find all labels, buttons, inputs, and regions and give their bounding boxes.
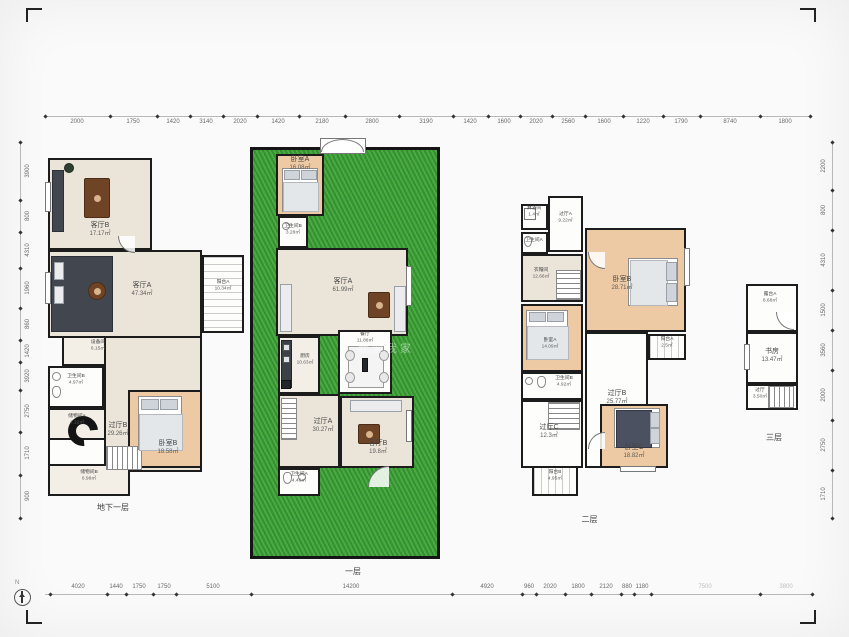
ruler-tick xyxy=(808,114,812,118)
blanket-icon xyxy=(616,410,652,448)
window xyxy=(45,182,51,212)
sofa-icon xyxy=(394,286,406,332)
ruler-line xyxy=(45,594,812,595)
ruler-tick xyxy=(48,592,52,596)
compass-icon xyxy=(14,589,31,606)
dimension-label: 2020 xyxy=(233,119,246,125)
ruler-tick xyxy=(830,418,834,422)
plant-icon xyxy=(64,163,74,173)
dimension-label: 1440 xyxy=(109,584,122,590)
ruler-tick xyxy=(830,328,834,332)
ruler-tick xyxy=(563,592,567,596)
sofa-icon xyxy=(350,400,402,412)
stairs-icon xyxy=(768,386,794,408)
sink-icon xyxy=(298,473,306,481)
dimension-label: 2120 xyxy=(599,584,612,590)
dimension-label: 14200 xyxy=(343,584,360,590)
dimension-label: 1750 xyxy=(132,584,145,590)
ruler-tick xyxy=(124,592,128,596)
ruler-tick xyxy=(43,114,47,118)
toilet-icon xyxy=(52,386,61,398)
ruler-tick xyxy=(450,592,454,596)
ruler-tick xyxy=(758,592,762,596)
ruler-tick xyxy=(18,360,22,364)
ruler-tick xyxy=(18,473,22,477)
ruler-tick xyxy=(518,114,522,118)
floor-label-second: 二层 xyxy=(562,514,617,525)
dimension-label: 2020 xyxy=(543,584,556,590)
dimension-label: 1420 xyxy=(25,344,31,357)
dimension-label: 800 xyxy=(821,205,827,215)
pillow-icon xyxy=(650,428,660,444)
ruler-tick xyxy=(661,114,665,118)
ruler-tick xyxy=(830,188,834,192)
ruler-tick xyxy=(18,140,22,144)
dimension-label: 1500 xyxy=(821,303,827,316)
sink-icon xyxy=(282,222,290,230)
dimension-label: 2800 xyxy=(365,119,378,125)
window xyxy=(744,344,750,370)
ruler-tick xyxy=(18,388,22,392)
ruler-tick xyxy=(649,592,653,596)
corner-mark xyxy=(800,610,816,624)
dimension-label: 4310 xyxy=(25,243,31,256)
ruler-tick xyxy=(105,592,109,596)
toilet-icon xyxy=(283,472,292,484)
dimension-label: 1220 xyxy=(636,119,649,125)
ruler-tick xyxy=(18,306,22,310)
pillow-icon xyxy=(666,262,677,281)
ruler-tick xyxy=(188,114,192,118)
pillow-icon xyxy=(141,399,159,410)
dimension-label: 1600 xyxy=(597,119,610,125)
dimension-label: 7500 xyxy=(698,584,711,590)
dimension-label: 1420 xyxy=(166,119,179,125)
window xyxy=(406,266,412,306)
pillow-icon xyxy=(650,412,660,428)
dimension-label: 1790 xyxy=(674,119,687,125)
ruler-tick xyxy=(619,592,623,596)
ruler-tick xyxy=(830,140,834,144)
dimension-label: 4920 xyxy=(480,584,493,590)
dimension-label: 3900 xyxy=(25,164,31,177)
round-table-icon xyxy=(88,282,106,300)
room-bath-b-f1 xyxy=(278,216,308,248)
ruler-tick xyxy=(520,592,524,596)
dimension-label: 4020 xyxy=(71,584,84,590)
ruler-tick xyxy=(18,230,22,234)
ruler-tick xyxy=(632,592,636,596)
ruler-tick xyxy=(18,516,22,520)
ruler-tick xyxy=(830,288,834,292)
ruler-tick xyxy=(108,114,112,118)
dimension-label: 1960 xyxy=(25,281,31,294)
window xyxy=(684,248,690,286)
dimension-label: 1800 xyxy=(571,584,584,590)
floor-label-third: 三层 xyxy=(748,432,800,443)
dimension-label: 5100 xyxy=(206,584,219,590)
stove-icon xyxy=(283,344,290,351)
dimension-label: 2000 xyxy=(821,388,827,401)
ruler-tick xyxy=(830,368,834,372)
dimension-label: 2560 xyxy=(561,119,574,125)
window xyxy=(406,410,412,442)
cushion-icon xyxy=(54,286,64,304)
dimension-label: 3800 xyxy=(779,584,792,590)
dimension-label: 1180 xyxy=(636,584,649,590)
compass-needle-icon xyxy=(21,591,23,603)
ruler-tick xyxy=(810,592,814,596)
floorplan-sheet: 2000175014203140202014202180280031901420… xyxy=(0,0,849,637)
dimension-label: 3140 xyxy=(199,119,212,125)
stairs-icon xyxy=(281,398,297,440)
dimension-label: 880 xyxy=(622,584,632,590)
dimension-label: 8740 xyxy=(723,119,736,125)
window xyxy=(45,272,51,304)
stairs-icon xyxy=(106,446,142,470)
north-label: N xyxy=(15,580,19,586)
sink-icon xyxy=(525,377,533,385)
dimension-label: 800 xyxy=(25,211,31,221)
ruler-tick xyxy=(255,114,259,118)
dimension-label: 1710 xyxy=(25,446,31,459)
ruler-tick xyxy=(830,468,834,472)
stairs-icon xyxy=(548,402,580,430)
room-balcony-b-f2 xyxy=(532,466,578,496)
dimension-label: 2180 xyxy=(315,119,328,125)
chair-icon xyxy=(379,372,389,383)
chair-icon xyxy=(345,372,355,383)
pillow-icon xyxy=(529,312,546,322)
dimension-label: 3920 xyxy=(25,369,31,382)
coffee-table-icon xyxy=(84,178,110,218)
blanket-icon xyxy=(630,260,668,306)
dimension-label: 860 xyxy=(25,319,31,329)
stairs-icon xyxy=(556,270,581,300)
watermark: 我爱我家 xyxy=(358,340,414,356)
pillow-icon xyxy=(160,399,178,410)
dimension-label: 2020 xyxy=(529,119,542,125)
shower-tray-icon xyxy=(524,208,536,220)
sink-icon xyxy=(52,372,61,381)
toilet-icon xyxy=(537,376,546,388)
ruler-tick xyxy=(18,198,22,202)
sofa-icon xyxy=(280,284,292,332)
ruler-tick xyxy=(550,114,554,118)
ruler-tick xyxy=(758,114,762,118)
ruler-tick xyxy=(155,114,159,118)
ruler-tick xyxy=(621,114,625,118)
corner-mark xyxy=(26,8,42,22)
dimension-label: 2000 xyxy=(70,119,83,125)
blanket-icon xyxy=(139,414,183,451)
toilet-icon xyxy=(524,236,532,247)
ruler-tick xyxy=(486,114,490,118)
ruler-tick xyxy=(583,114,587,118)
dimension-label: 2750 xyxy=(25,404,31,417)
blanket-icon xyxy=(283,182,319,212)
ruler-tick xyxy=(343,114,347,118)
dimension-label: 900 xyxy=(25,491,31,501)
dimension-label: 1800 xyxy=(778,119,791,125)
ruler-tick xyxy=(451,114,455,118)
pillow-icon xyxy=(284,170,300,180)
room-balcony-a xyxy=(202,255,244,333)
room-balcony-a-f2 xyxy=(648,334,686,360)
room-study xyxy=(746,332,798,384)
dimension-label: 2750 xyxy=(821,438,827,451)
room-hall-a-f2 xyxy=(548,196,583,252)
dimension-label: 1710 xyxy=(821,487,827,500)
floor-label-first: 一层 xyxy=(328,566,378,577)
sofa-icon xyxy=(52,170,64,232)
ruler-tick xyxy=(18,430,22,434)
fridge-icon xyxy=(281,380,291,389)
dimension-label: 3560 xyxy=(821,343,827,356)
corner-mark xyxy=(800,8,816,22)
blanket-icon xyxy=(527,326,569,360)
floor-label-basement: 地下一层 xyxy=(78,502,148,513)
pillow-icon xyxy=(547,312,564,322)
dimension-label: 1600 xyxy=(497,119,510,125)
ruler-tick xyxy=(830,516,834,520)
ruler-tick xyxy=(534,592,538,596)
cushion-icon xyxy=(54,262,64,280)
ruler-tick xyxy=(151,592,155,596)
ruler-tick xyxy=(18,338,22,342)
coffee-table-icon xyxy=(358,424,380,444)
kitchen-sink-icon xyxy=(283,356,290,363)
room-bath-b-f2 xyxy=(521,372,583,400)
dimension-label: 2200 xyxy=(821,159,827,172)
ruler-tick xyxy=(18,266,22,270)
chair-icon xyxy=(345,350,355,361)
ruler-tick xyxy=(249,592,253,596)
ruler-tick xyxy=(589,592,593,596)
dimension-label: 1420 xyxy=(463,119,476,125)
dimension-label: 3190 xyxy=(419,119,432,125)
ruler-tick xyxy=(297,114,301,118)
ruler-tick xyxy=(174,592,178,596)
corner-mark xyxy=(26,610,42,624)
dimension-label: 1750 xyxy=(126,119,139,125)
centerpiece-icon xyxy=(362,358,368,372)
dimension-label: 960 xyxy=(524,584,534,590)
ruler-tick xyxy=(221,114,225,118)
dimension-label: 4310 xyxy=(821,253,827,266)
ruler-tick xyxy=(830,228,834,232)
pillow-icon xyxy=(301,170,317,180)
dimension-label: 1750 xyxy=(157,584,170,590)
ruler-tick xyxy=(397,114,401,118)
coffee-table-icon xyxy=(368,292,390,318)
window xyxy=(620,466,656,472)
ruler-tick xyxy=(698,114,702,118)
dimension-label: 1420 xyxy=(271,119,284,125)
pillow-icon xyxy=(666,283,677,302)
